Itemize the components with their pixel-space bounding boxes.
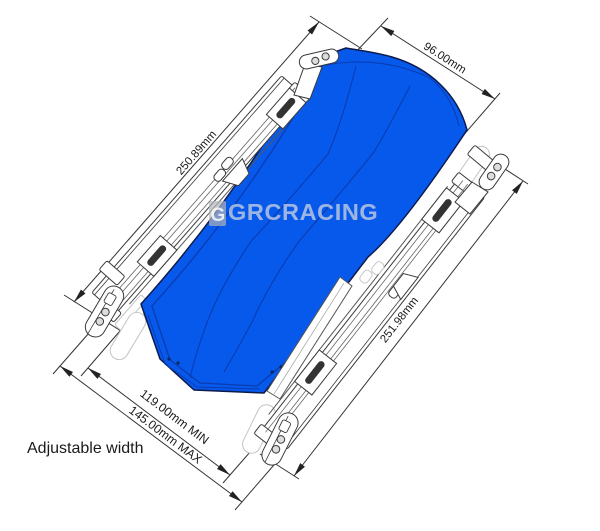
svg-text:Adjustable width: Adjustable width: [27, 440, 144, 457]
svg-text:G: G: [211, 205, 226, 226]
svg-text:GRCRACING: GRCRACING: [228, 199, 378, 225]
